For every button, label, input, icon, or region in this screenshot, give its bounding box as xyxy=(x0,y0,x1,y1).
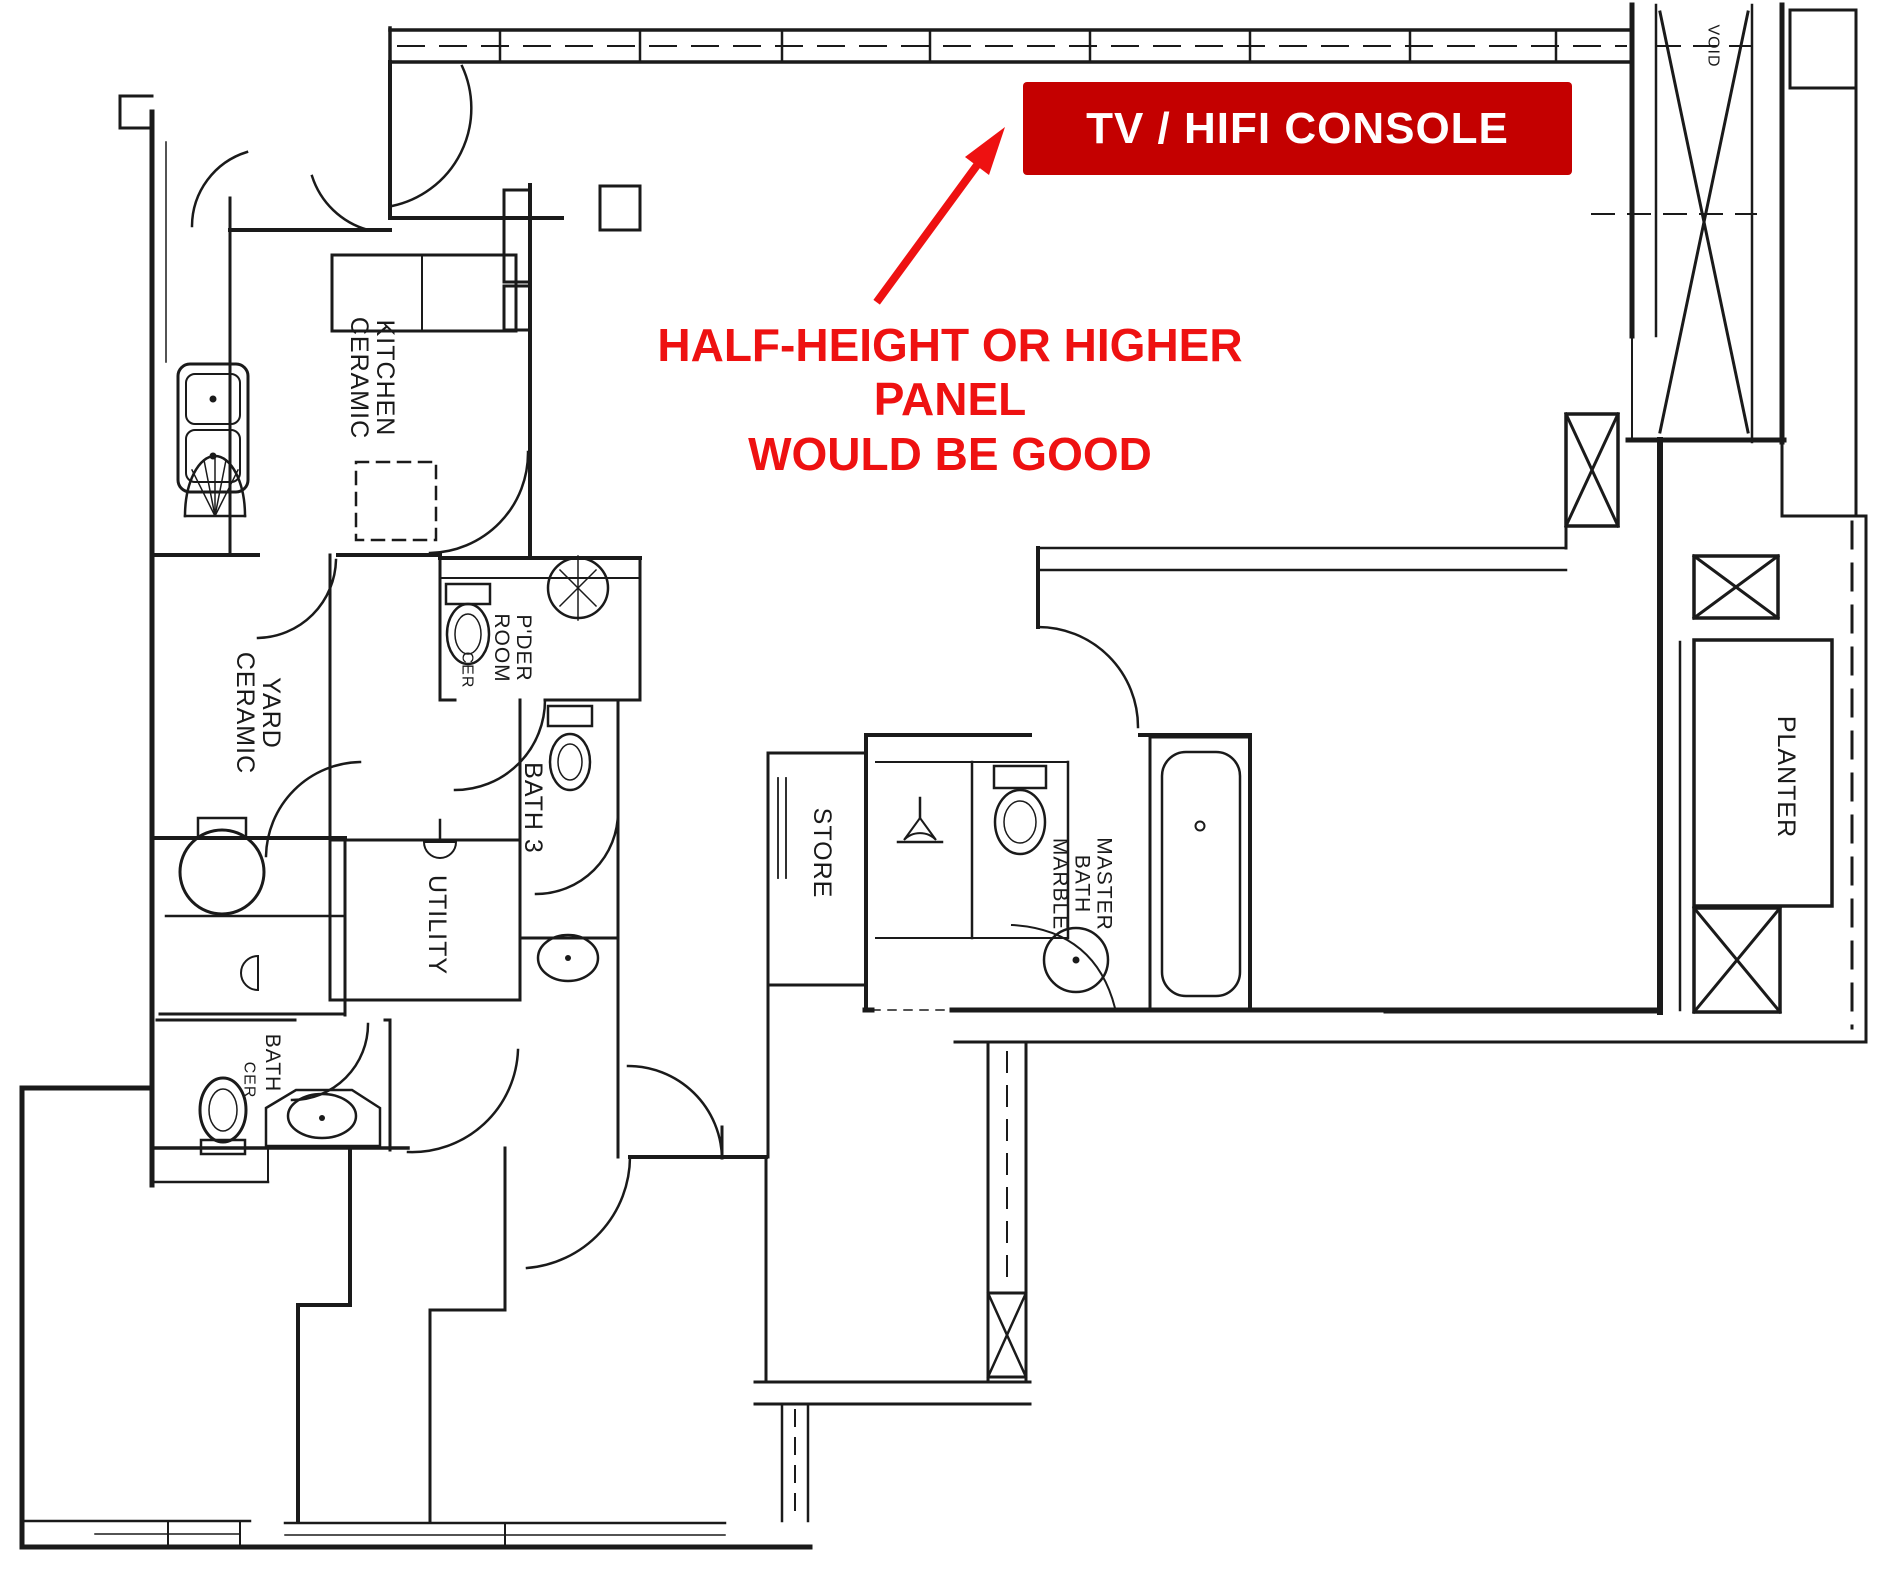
label-master-bath: MASTER BATH MARBLE xyxy=(1049,837,1114,931)
label-bath2: BATH xyxy=(261,1034,283,1092)
interior-walls xyxy=(152,62,1566,1521)
floor-plan-drawing xyxy=(0,0,1904,1582)
bathtub xyxy=(1150,737,1250,1009)
wc-basin xyxy=(241,956,258,990)
panel-note: HALF-HEIGHT OR HIGHER PANEL WOULD BE GOO… xyxy=(620,318,1280,481)
service-basin xyxy=(185,456,245,516)
void-shaft xyxy=(1592,5,1866,516)
label-bath3: BATH 3 xyxy=(520,762,546,854)
powder-basin xyxy=(548,556,608,620)
shower-head xyxy=(898,798,942,842)
label-store: STORE xyxy=(809,808,835,899)
bath3-toilet xyxy=(548,706,592,790)
label-planter: PLANTER xyxy=(1773,716,1799,838)
label-yard: YARD CERAMIC xyxy=(232,652,284,774)
fixtures xyxy=(178,364,1250,1154)
washing-machine xyxy=(180,818,264,914)
planter-box xyxy=(1694,640,1832,906)
floor-plan-page: KITCHEN CERAMIC YARD CERAMIC P'DER ROOM … xyxy=(0,0,1904,1582)
label-kitchen: KITCHEN CERAMIC xyxy=(346,317,398,439)
tv-hifi-console-callout: TV / HIFI CONSOLE xyxy=(1023,82,1572,175)
label-utility: UTILITY xyxy=(424,875,450,975)
bath3-basin xyxy=(538,935,598,981)
label-bath2-finish: CER xyxy=(240,1062,257,1099)
label-void: VOID xyxy=(1704,24,1721,67)
window-wall-top xyxy=(390,28,1630,64)
label-powder-finish: CER xyxy=(458,652,475,689)
kitchen-sink xyxy=(178,364,248,492)
annotation-arrow xyxy=(879,127,1005,299)
door-arcs xyxy=(192,66,1138,1268)
label-powder-room: P'DER ROOM xyxy=(490,613,534,682)
master-toilet xyxy=(994,766,1046,854)
bath2-vanity xyxy=(266,1090,380,1146)
